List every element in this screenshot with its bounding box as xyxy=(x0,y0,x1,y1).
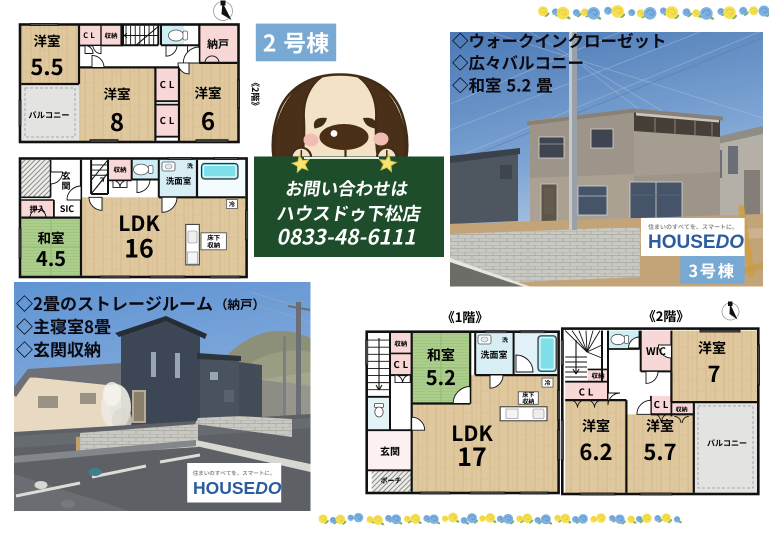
svg-text:HOUSEDO: HOUSEDO xyxy=(648,232,744,253)
svg-text:HOUSEDO: HOUSEDO xyxy=(193,478,282,498)
